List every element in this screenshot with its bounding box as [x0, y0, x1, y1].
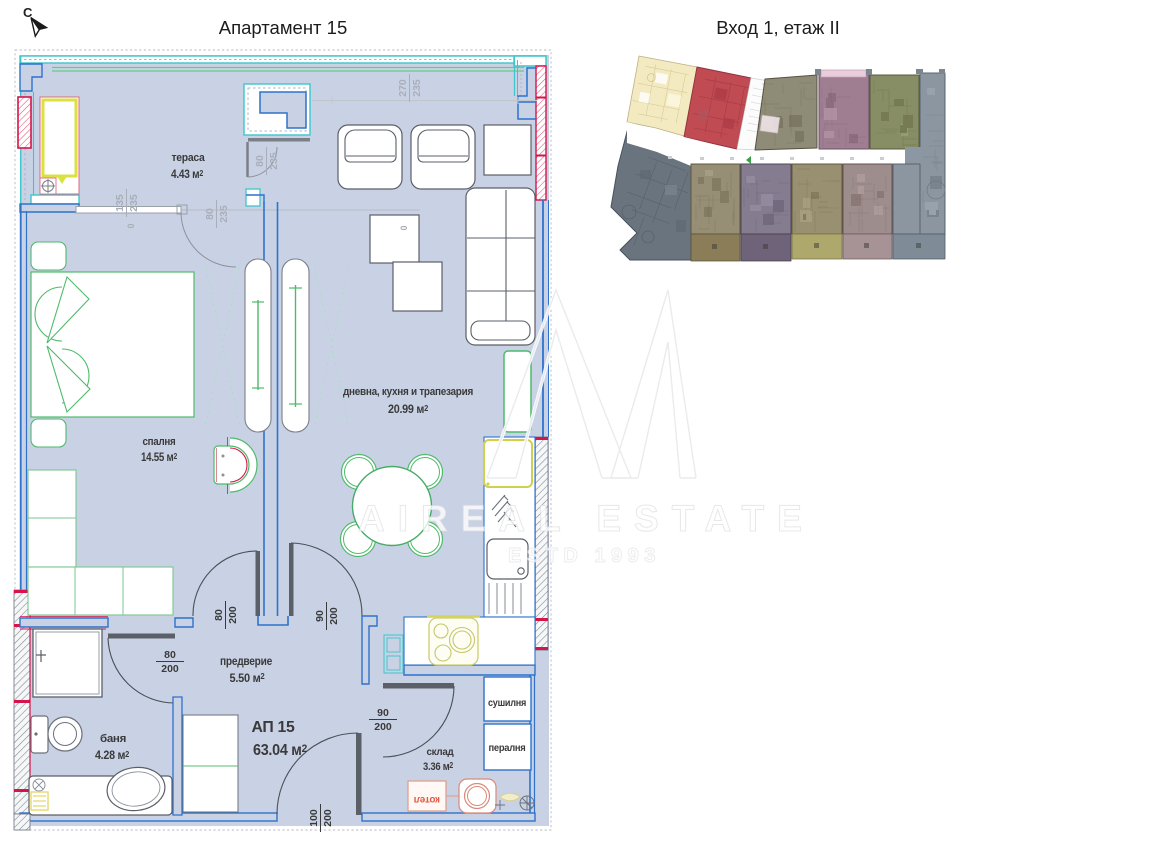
svg-text:80: 80	[254, 155, 266, 167]
svg-text:котел: котел	[414, 794, 440, 805]
svg-text:АП 15: АП 15	[252, 719, 296, 736]
svg-text:0: 0	[399, 225, 409, 230]
svg-text:200: 200	[328, 607, 340, 625]
svg-text:135: 135	[114, 194, 126, 212]
svg-text:200: 200	[161, 663, 179, 675]
svg-text:Апартамент 15: Апартамент 15	[219, 17, 348, 38]
svg-text:235: 235	[268, 152, 280, 170]
svg-text:80: 80	[204, 208, 216, 220]
svg-text:баня: баня	[100, 733, 126, 745]
svg-text:63.04 м2: 63.04 м2	[253, 742, 307, 759]
svg-text:пералня: пералня	[489, 743, 526, 754]
svg-text:235: 235	[411, 79, 423, 97]
svg-text:200: 200	[227, 606, 239, 624]
svg-text:20.99 м2: 20.99 м2	[388, 404, 429, 416]
svg-text:AIREAL ESTATE: AIREAL ESTATE	[358, 498, 815, 539]
svg-text:5.50 м2: 5.50 м2	[230, 671, 266, 685]
svg-text:3.36 м2: 3.36 м2	[423, 761, 454, 773]
svg-text:80: 80	[213, 609, 225, 621]
svg-text:сушилня: сушилня	[488, 698, 526, 709]
svg-text:235: 235	[128, 194, 140, 212]
svg-text:200: 200	[374, 721, 392, 733]
svg-text:90: 90	[314, 610, 326, 622]
svg-text:спалня: спалня	[143, 436, 176, 448]
svg-text:склад: склад	[427, 746, 455, 758]
svg-text:14.55 м2: 14.55 м2	[141, 452, 178, 464]
svg-text:4.43 м2: 4.43 м2	[171, 169, 204, 181]
svg-text:200: 200	[322, 809, 334, 827]
svg-text:0: 0	[126, 223, 136, 228]
svg-text:270: 270	[397, 79, 409, 97]
svg-text:100: 100	[308, 809, 320, 827]
svg-text:Вход 1, етаж II: Вход 1, етаж II	[716, 17, 840, 38]
svg-text:4.28 м2: 4.28 м2	[95, 750, 130, 762]
svg-text:80: 80	[164, 649, 176, 661]
svg-text:дневна, кухня и трапезария: дневна, кухня и трапезария	[343, 386, 473, 398]
svg-text:90: 90	[377, 707, 389, 719]
svg-text:ESTD 1993: ESTD 1993	[508, 545, 661, 567]
svg-text:235: 235	[218, 205, 230, 223]
svg-text:тераса: тераса	[172, 152, 206, 164]
svg-text:предверие: предверие	[220, 656, 272, 668]
